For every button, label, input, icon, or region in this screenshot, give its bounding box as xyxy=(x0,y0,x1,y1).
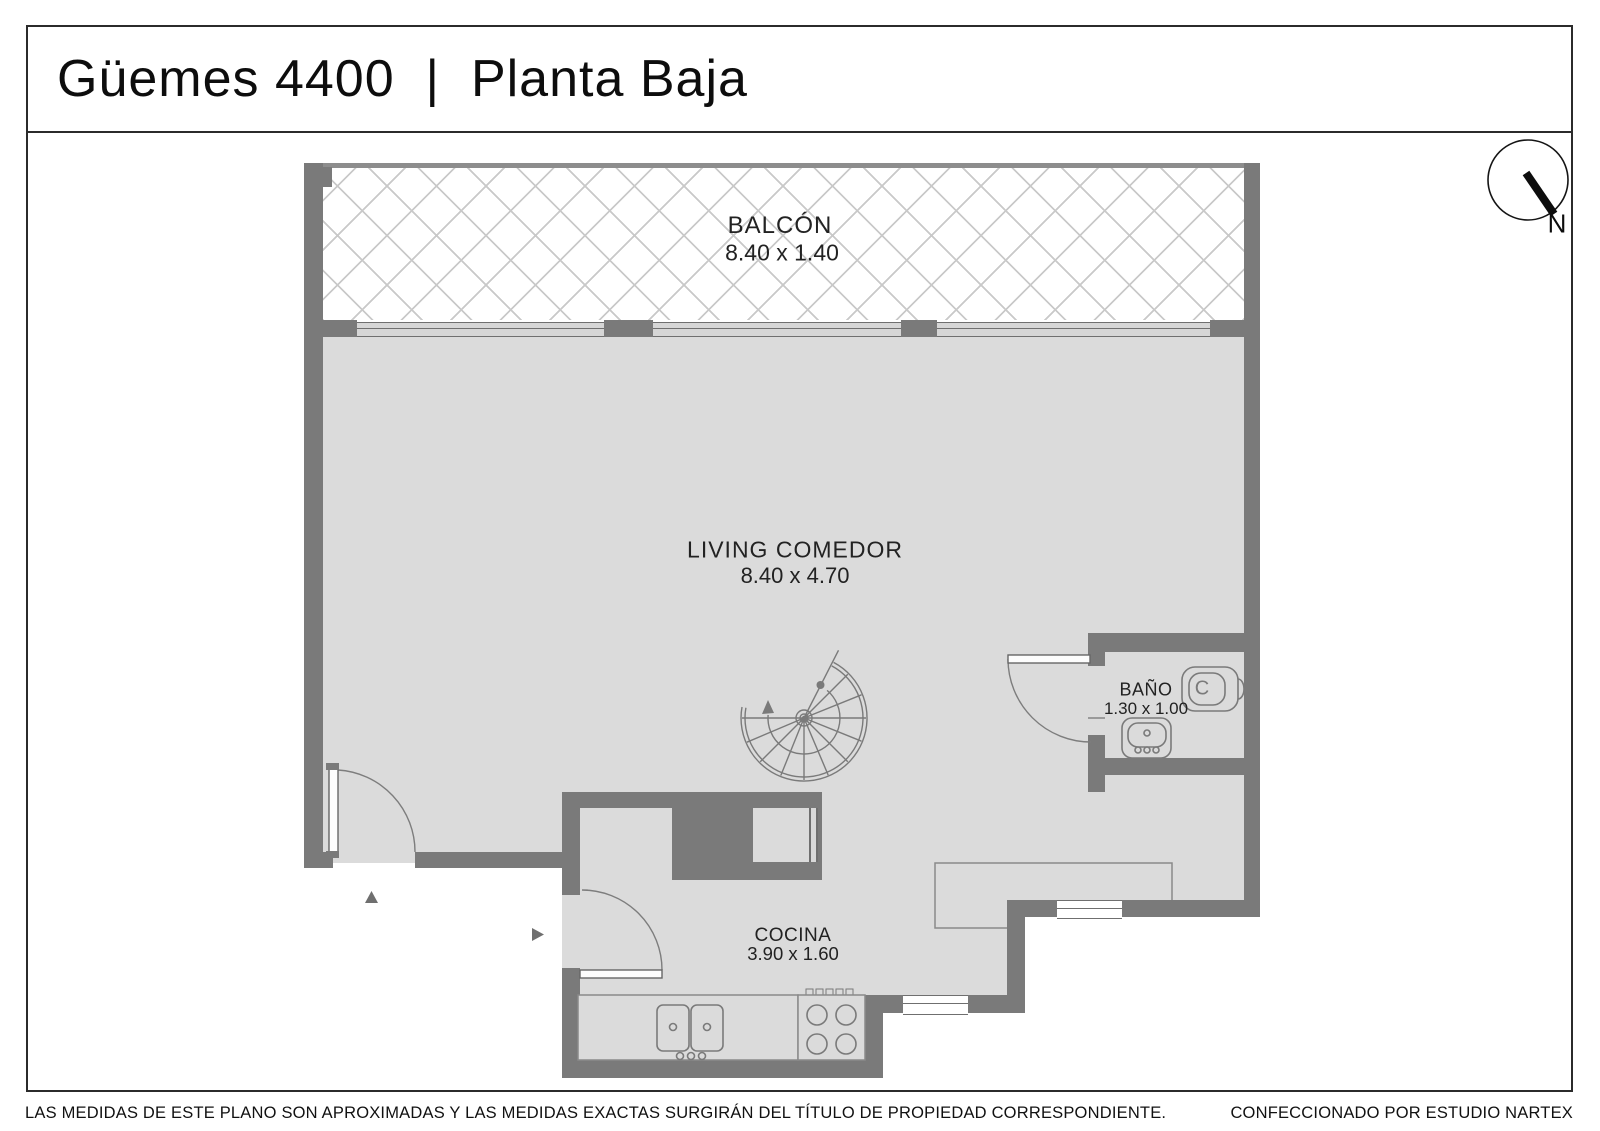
band-pier-4 xyxy=(1210,320,1244,337)
lower-right-wall-left xyxy=(1007,900,1057,917)
pass-top-wall xyxy=(562,792,822,808)
living-floor xyxy=(322,333,1244,863)
living-bottom-wall-left xyxy=(304,852,333,868)
pass-bottom-wall xyxy=(672,862,822,880)
living-label: LIVING COMEDOR xyxy=(687,537,903,564)
footer-credit: CONFECCIONADO POR ESTUDIO NARTEX xyxy=(1230,1104,1573,1123)
balcony-label: BALCÓN xyxy=(728,212,833,240)
lower-right-window xyxy=(1057,900,1122,919)
sill-wall-left xyxy=(883,995,903,1013)
kitchen-dims: 3.90 x 1.60 xyxy=(747,943,839,965)
band-pier-1 xyxy=(322,320,357,337)
kitchen-window xyxy=(903,995,968,1015)
bath-threshold-line xyxy=(1088,717,1105,719)
kitchen-left-wall-upper xyxy=(562,792,580,895)
right-wall xyxy=(1244,163,1260,917)
lower-right-floor xyxy=(883,863,1025,1013)
balcony-corner-step xyxy=(322,167,332,187)
living-dims: 8.40 x 4.70 xyxy=(741,563,850,589)
bathroom-dims: 1.30 x 1.00 xyxy=(1104,699,1188,719)
bath-left-wall xyxy=(1088,735,1105,792)
left-wall xyxy=(304,163,323,868)
lower-right-wall-right xyxy=(1122,900,1244,917)
balcony-dims: 8.40 x 1.40 xyxy=(725,240,839,267)
band-pier-3 xyxy=(901,320,937,337)
bath-left-jamb xyxy=(1088,652,1105,666)
band-window-2 xyxy=(653,322,901,337)
pass-edge xyxy=(818,808,822,862)
band-pier-2 xyxy=(604,320,653,337)
living-bottom-wall-right xyxy=(415,852,563,868)
band-window-3 xyxy=(937,322,1210,337)
pass-through-glazing xyxy=(809,808,818,862)
toilet-symbol-label: C xyxy=(1195,678,1209,701)
band-window-1 xyxy=(357,322,604,337)
kitchen-bottom-wall xyxy=(562,1060,883,1078)
plan-title: Güemes 4400 | Planta Baja xyxy=(57,49,748,109)
bath-bottom-wall xyxy=(1105,758,1244,775)
balcony-edge-line xyxy=(304,163,1260,168)
floor-plan-page: Güemes 4400 | Planta Baja xyxy=(0,0,1600,1131)
bath-top-wall xyxy=(1088,633,1244,652)
footer-disclaimer: LAS MEDIDAS DE ESTE PLANO SON APROXIMADA… xyxy=(25,1104,1166,1123)
header-divider xyxy=(26,131,1573,133)
bathroom-label: BAÑO xyxy=(1119,680,1172,701)
compass-north-label: N xyxy=(1548,209,1567,240)
